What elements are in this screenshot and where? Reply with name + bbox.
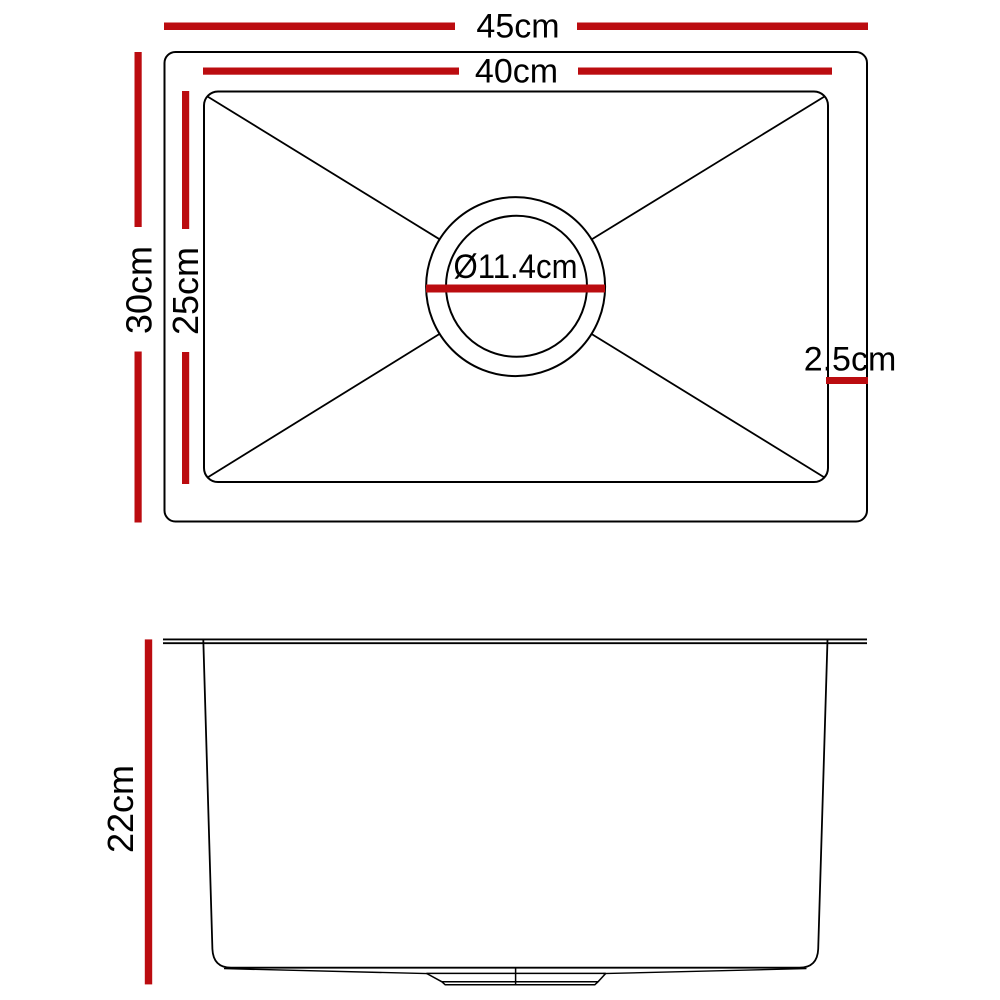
svg-text:40cm: 40cm bbox=[475, 53, 558, 91]
svg-text:Ø11.4cm: Ø11.4cm bbox=[454, 248, 578, 286]
svg-text:25cm: 25cm bbox=[165, 247, 206, 335]
svg-text:22cm: 22cm bbox=[100, 765, 141, 853]
svg-text:45cm: 45cm bbox=[476, 8, 559, 46]
svg-text:30cm: 30cm bbox=[119, 246, 160, 334]
svg-text:2.5cm: 2.5cm bbox=[804, 341, 897, 379]
